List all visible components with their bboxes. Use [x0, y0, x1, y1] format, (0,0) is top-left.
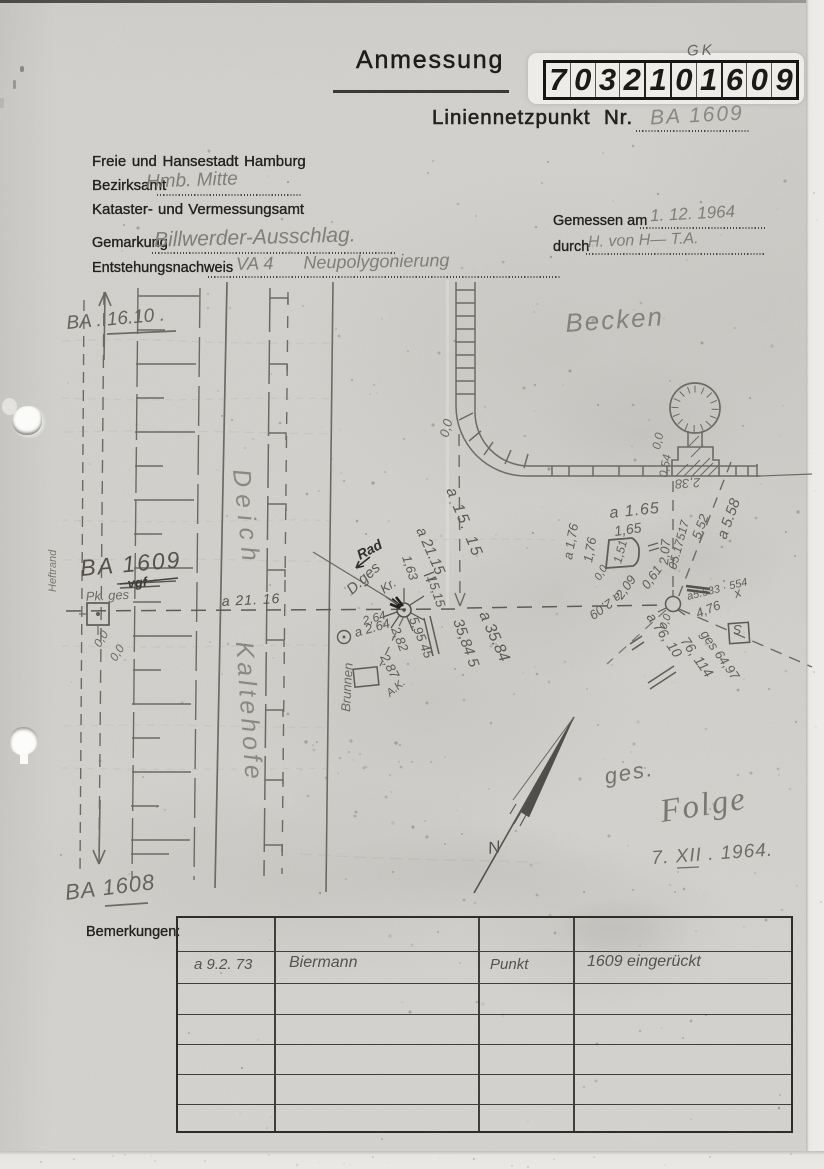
- svg-text:ges.: ges.: [603, 756, 656, 789]
- svg-text:Kaltehofe: Kaltehofe: [230, 640, 268, 783]
- svg-text:0,0: 0,0: [436, 417, 455, 439]
- svg-text:1,51: 1,51: [610, 539, 630, 565]
- svg-text:a 35.84: a 35.84: [475, 609, 512, 665]
- svg-text:2,38: 2,38: [674, 475, 702, 492]
- svg-text:1,65: 1,65: [613, 519, 642, 539]
- svg-text:a 21. 16: a 21. 16: [221, 590, 280, 609]
- svg-text:Becken: Becken: [564, 301, 665, 338]
- svg-text:15,15: 15,15: [424, 573, 449, 609]
- svg-text:a 5.58: a 5.58: [714, 496, 744, 542]
- svg-text:S: S: [733, 622, 742, 637]
- svg-text:Rad: Rad: [354, 536, 385, 563]
- svg-text:a 15. 15: a 15. 15: [442, 485, 485, 560]
- svg-text:0,0: 0,0: [592, 562, 610, 582]
- svg-text:Folge: Folge: [657, 781, 750, 830]
- svg-text:Pk. ges: Pk. ges: [85, 587, 130, 604]
- svg-text:a 1.65: a 1.65: [609, 500, 661, 522]
- svg-text:BA 1608: BA 1608: [64, 869, 157, 905]
- svg-text:2,82: 2,82: [388, 624, 412, 655]
- svg-text:7. XII . 1964.: 7. XII . 1964.: [651, 840, 774, 869]
- svg-text:N: N: [486, 837, 502, 858]
- svg-text:A.K.: A.K.: [383, 677, 407, 700]
- svg-text:1,76: 1,76: [580, 535, 599, 563]
- svg-text:0,0: 0,0: [649, 431, 666, 451]
- svg-text:Heftrand: Heftrand: [47, 549, 59, 592]
- svg-text:35,84 5: 35,84 5: [449, 617, 482, 670]
- svg-text:Deich: Deich: [227, 468, 265, 569]
- svg-text:4,76: 4,76: [694, 597, 724, 621]
- svg-text:1,63: 1,63: [399, 553, 421, 582]
- svg-text:a 1,76: a 1,76: [560, 522, 581, 561]
- svg-text:0,61: 0,61: [638, 562, 665, 591]
